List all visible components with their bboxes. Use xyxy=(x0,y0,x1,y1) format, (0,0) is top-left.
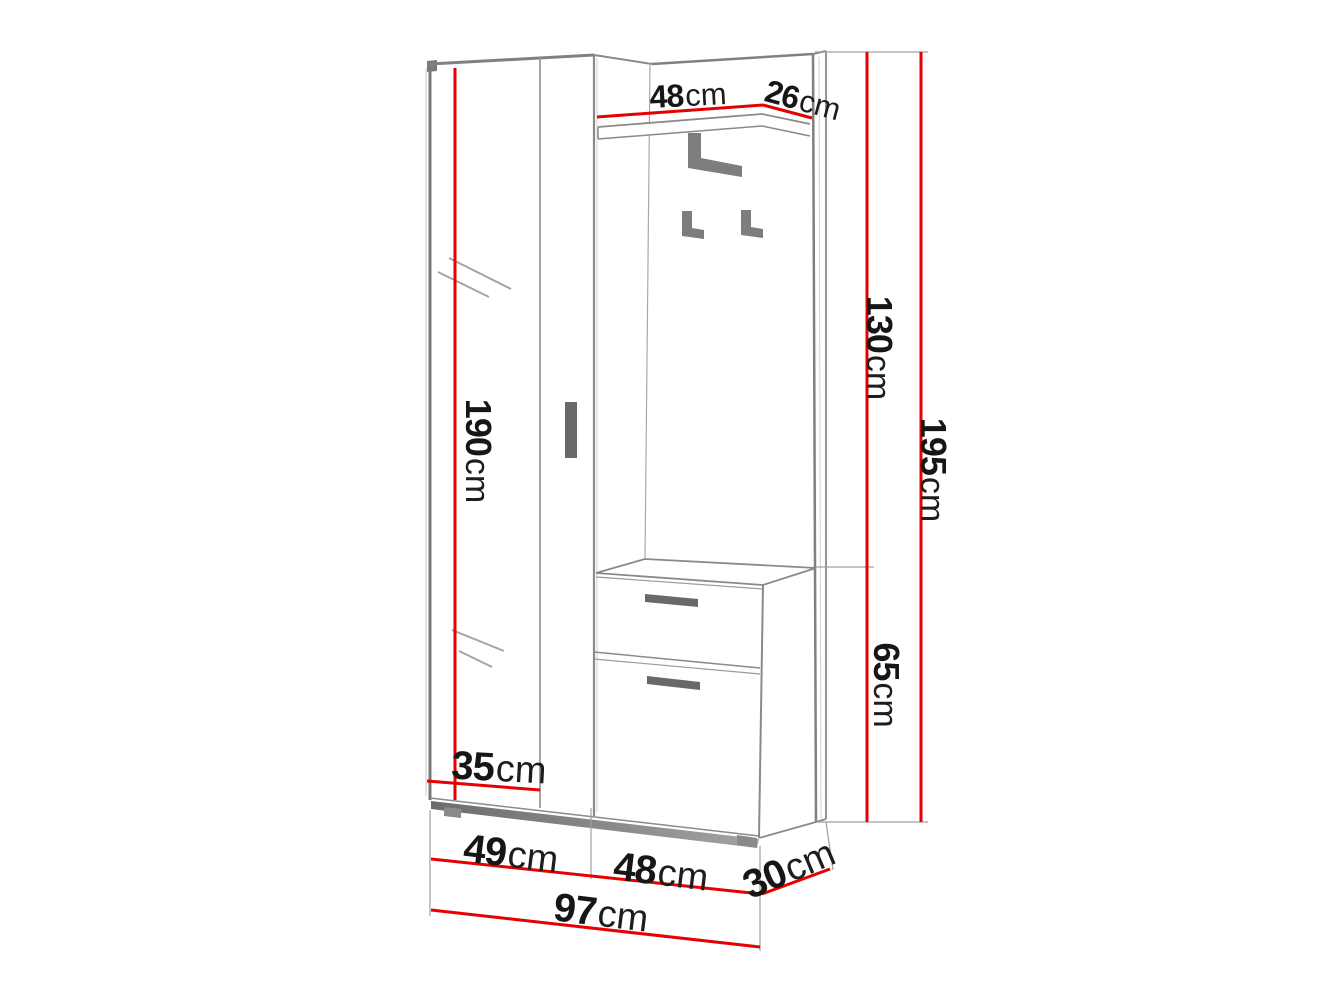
wardrobe-top-depth-edge xyxy=(594,55,652,64)
dimension-diagram: 48cm 26cm 130cm 195cm 190cm 65cm 35cm 49… xyxy=(0,0,1325,994)
dimension-value: 195 xyxy=(913,418,954,475)
dimension-value: 97 xyxy=(551,885,599,934)
dimension-value: 65 xyxy=(866,642,907,680)
foot xyxy=(737,835,757,848)
coat-rack-section xyxy=(598,114,810,239)
mirror-shine-icon xyxy=(438,272,489,297)
side-panel xyxy=(813,51,826,822)
hanger-bracket-icon xyxy=(688,133,742,177)
wardrobe-corner-notch xyxy=(427,60,437,72)
back-wall-corner-edge xyxy=(645,64,650,559)
drawer-handle xyxy=(645,594,698,607)
dimension-unit: cm xyxy=(655,852,710,900)
dimension-value: 190 xyxy=(458,399,499,456)
mirror-shine-icon xyxy=(452,630,504,651)
dimension-label-shelf-width: 48cm xyxy=(649,77,727,113)
dimension-label-cabinet-height: 65cm xyxy=(868,642,904,727)
cabinet-top-surface xyxy=(596,559,816,585)
dimension-unit: cm xyxy=(505,834,560,882)
dimension-value: 130 xyxy=(859,296,900,353)
drawer-divider xyxy=(594,652,760,668)
dimension-unit: cm xyxy=(913,477,951,522)
dimension-label-wardrobe-depth: 35cm xyxy=(450,746,547,791)
dimension-unit: cm xyxy=(684,76,727,113)
dimension-unit: cm xyxy=(495,748,548,793)
dimension-label-upper-height: 130cm xyxy=(861,296,897,400)
dimension-unit: cm xyxy=(595,893,650,941)
wardrobe-top-edge xyxy=(430,55,594,64)
dimension-value: 48 xyxy=(611,844,659,893)
dimension-label-total-height: 195cm xyxy=(915,418,951,522)
dimension-label-door-height: 190cm xyxy=(460,399,496,503)
mirror-shine-icon xyxy=(449,258,511,289)
cabinet-right-edge xyxy=(759,585,763,838)
dimension-unit: cm xyxy=(859,355,897,400)
panel-front-highlight xyxy=(819,57,821,819)
coat-hook-icon xyxy=(682,211,704,239)
coat-hook-icon xyxy=(741,210,763,238)
cabinet-bottom-depth-edge xyxy=(759,822,816,838)
drawer-divider xyxy=(594,659,760,674)
dimension-value: 48 xyxy=(649,77,684,115)
panel-front-edge xyxy=(813,54,816,822)
dimension-unit: cm xyxy=(458,458,496,503)
door-handle xyxy=(565,402,577,458)
drawer-handle xyxy=(647,676,700,690)
dimension-value: 49 xyxy=(461,826,509,875)
back-wall-top-edge xyxy=(652,54,813,64)
mirror-shine-icon xyxy=(459,651,492,667)
furniture-drawing xyxy=(0,0,1325,994)
dimension-value: 35 xyxy=(450,744,495,790)
shoe-cabinet xyxy=(594,559,816,838)
dimension-unit: cm xyxy=(866,682,904,727)
